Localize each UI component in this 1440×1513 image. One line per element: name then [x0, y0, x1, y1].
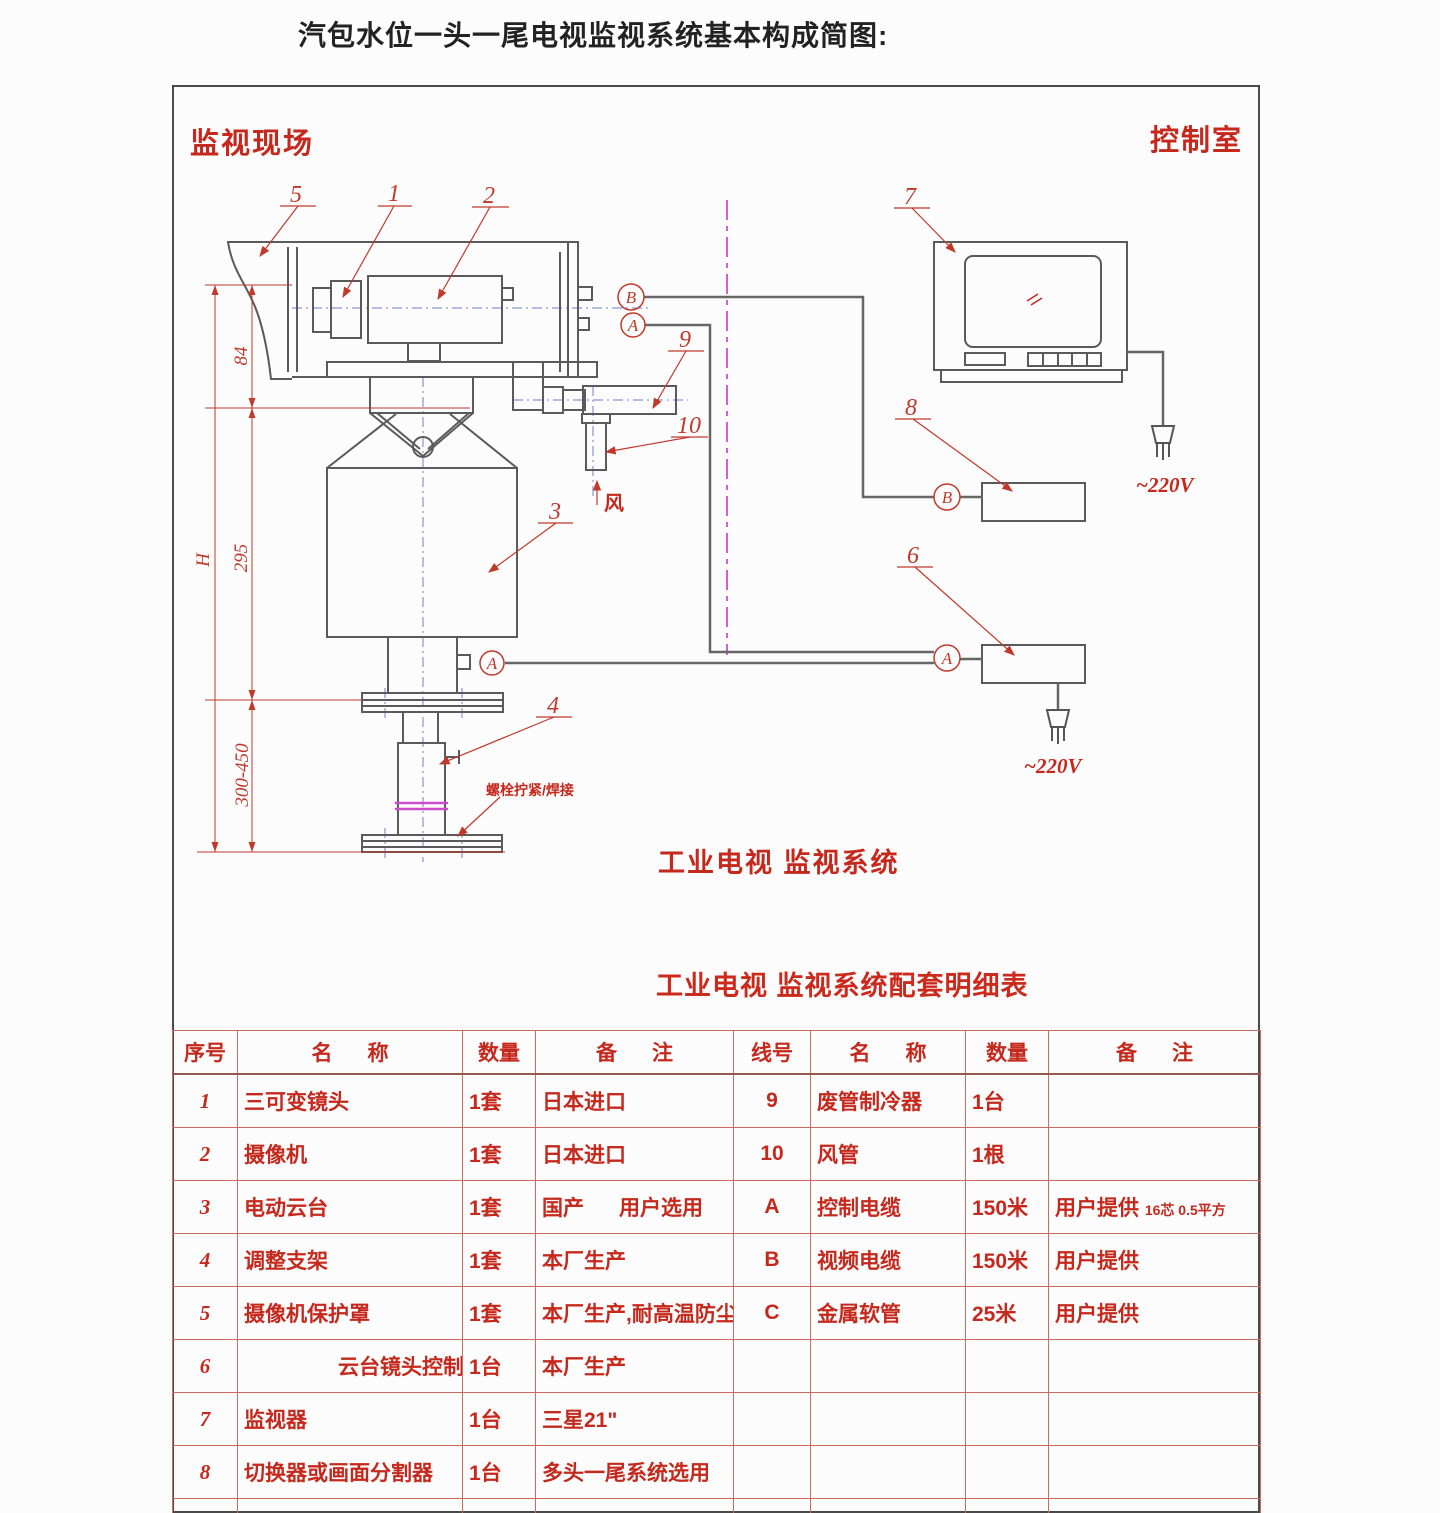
table-header-row: 序号 名 称 数量 备 注 线号 名 称 数量 备 注	[173, 1031, 1261, 1075]
controller-box	[982, 645, 1085, 683]
mounting-plate	[327, 362, 597, 377]
cell-remark2: 用户提供	[1049, 1234, 1261, 1287]
cell-no: 5	[173, 1287, 238, 1340]
control-cable-a-camera	[645, 325, 934, 652]
monitor-base	[941, 370, 1122, 382]
cell-qty: 1套	[463, 1234, 536, 1287]
header-remark2: 备 注	[1049, 1031, 1261, 1075]
callout-9: 9	[679, 327, 691, 353]
cell-name2: 视频电缆	[811, 1234, 966, 1287]
cell-remark2	[1049, 1393, 1261, 1446]
cell-no: 2	[173, 1128, 238, 1181]
table-row-partial	[173, 1499, 1261, 1513]
cell-remark: 本厂生产,耐高温防尘	[536, 1287, 734, 1340]
cell-qty2: 1根	[966, 1128, 1049, 1181]
cell-no: 1	[173, 1074, 238, 1128]
table-row: 7 监视器 1台 三星21"	[173, 1393, 1261, 1446]
callout-1: 1	[388, 181, 400, 207]
cooler-assembly	[513, 362, 676, 470]
table-row: 2 摄像机 1套 日本进口 10 风管 1根	[173, 1128, 1261, 1181]
cell-qty: 1台	[463, 1340, 536, 1393]
switcher-box	[982, 483, 1085, 521]
upper-flange	[362, 693, 503, 712]
cell-line-no	[734, 1393, 811, 1446]
cell-name: 电动云台	[238, 1181, 463, 1234]
header-qty: 数量	[463, 1031, 536, 1075]
cell-remark: 本厂生产	[536, 1340, 734, 1393]
cell-qty: 1台	[463, 1446, 536, 1499]
cell-remark: 日本进口	[536, 1128, 734, 1181]
callout-2: 2	[483, 183, 495, 209]
cell-remark: 三星21"	[536, 1393, 734, 1446]
cell-remark: 国产 用户选用	[536, 1181, 734, 1234]
cell-qty: 1套	[463, 1181, 536, 1234]
callout-6: 6	[907, 543, 919, 569]
cell-name2	[811, 1446, 966, 1499]
cell-name: 切换器或画面分割器	[238, 1446, 463, 1499]
cell-qty: 1套	[463, 1287, 536, 1340]
dim-295: 295	[231, 544, 252, 573]
cell-line-no	[734, 1340, 811, 1393]
cell-qty: 1台	[463, 1393, 536, 1446]
callout-3: 3	[548, 499, 561, 525]
header-name2: 名 称	[811, 1031, 966, 1075]
schematic-svg: B A B A A 84 295 300-450	[0, 0, 1440, 1030]
dim-300-450: 300-450	[232, 743, 253, 808]
cell-remark2	[1049, 1446, 1261, 1499]
cell-name2: 风管	[811, 1128, 966, 1181]
table-row: 6 云台镜头控制器 1台 本厂生产	[173, 1340, 1261, 1393]
callout-7: 7	[904, 184, 917, 210]
dim-h: H	[193, 552, 214, 568]
lens-barrel	[313, 288, 331, 332]
cell-line-no: A	[734, 1181, 811, 1234]
cell-name2	[811, 1393, 966, 1446]
bottom-flange	[362, 835, 502, 852]
plug-icon	[1047, 710, 1069, 744]
cell-name2: 金属软管	[811, 1287, 966, 1340]
table-row: 5 摄像机保护罩 1套 本厂生产,耐高温防尘 C 金属软管 25米 用户提供	[173, 1287, 1261, 1340]
cell-line-no: 10	[734, 1128, 811, 1181]
cell-no: 6	[173, 1340, 238, 1393]
callout-10: 10	[677, 413, 701, 439]
cell-qty2	[966, 1446, 1049, 1499]
adjust-bracket	[398, 743, 445, 835]
header-name: 名 称	[238, 1031, 463, 1075]
weld-note: 螺栓拧紧/焊接	[486, 782, 574, 798]
plug-icon	[1152, 426, 1174, 460]
cell-qty2	[966, 1393, 1049, 1446]
header-remark: 备 注	[536, 1031, 734, 1075]
cell-name2: 废管制冷器	[811, 1074, 966, 1128]
cell-name: 三可变镜头	[238, 1074, 463, 1128]
cell-no: 3	[173, 1181, 238, 1234]
screen-reflection-mark	[1027, 294, 1042, 305]
callout-4: 4	[547, 693, 559, 719]
cell-qty2: 1台	[966, 1074, 1049, 1128]
cell-qty2: 150米	[966, 1234, 1049, 1287]
header-line-no: 线号	[734, 1031, 811, 1075]
parts-table: 序号 名 称 数量 备 注 线号 名 称 数量 备 注 1 三可变镜头 1套 日…	[172, 1030, 1261, 1513]
table-title: 工业电视 监视系统配套明细表	[656, 964, 1029, 1003]
connector-b: B	[626, 288, 637, 307]
cell-remark: 日本进口	[536, 1074, 734, 1128]
cell-line-no: 9	[734, 1074, 811, 1128]
cell-remark: 本厂生产	[536, 1234, 734, 1287]
table-row: 1 三可变镜头 1套 日本进口 9 废管制冷器 1台	[173, 1074, 1261, 1128]
table-row: 3 电动云台 1套 国产 用户选用 A 控制电缆 150米 用户提供 16芯 0…	[173, 1181, 1261, 1234]
cell-line-no: B	[734, 1234, 811, 1287]
wind-label: 风	[604, 493, 624, 515]
callout-numbers: 5 1 2 9 10 3 4 7 8 6	[290, 181, 919, 719]
connector-b: B	[942, 488, 953, 507]
cell-name: 云台镜头控制器	[238, 1340, 463, 1393]
camera-assembly	[228, 242, 676, 852]
system-label: 工业电视 监视系统	[658, 847, 900, 878]
control-room-equipment	[934, 242, 1127, 683]
voltage-label-monitor: ~220V	[1136, 473, 1195, 497]
cell-remark: 多头一尾系统选用	[536, 1446, 734, 1499]
centerlines	[292, 308, 688, 862]
pan-tilt-body	[327, 468, 517, 637]
cell-name2: 控制电缆	[811, 1181, 966, 1234]
header-no: 序号	[173, 1031, 238, 1075]
cell-remark2: 用户提供 16芯 0.5平方	[1049, 1181, 1261, 1234]
callout-8: 8	[905, 395, 917, 421]
voltage-label-controller: ~220V	[1024, 754, 1083, 778]
cell-remark2	[1049, 1128, 1261, 1181]
housing-body	[290, 242, 578, 377]
cell-remark2	[1049, 1074, 1261, 1128]
header-qty2: 数量	[966, 1031, 1049, 1075]
cell-no: 8	[173, 1446, 238, 1499]
cell-name: 调整支架	[238, 1234, 463, 1287]
cell-name: 摄像机保护罩	[238, 1287, 463, 1340]
connector-a: A	[627, 316, 639, 335]
cell-no: 4	[173, 1234, 238, 1287]
air-outlet-tube	[586, 423, 606, 470]
camera-body	[368, 276, 502, 343]
cell-remark2: 用户提供	[1049, 1287, 1261, 1340]
table-row: 4 调整支架 1套 本厂生产 B 视频电缆 150米 用户提供	[173, 1234, 1261, 1287]
table-row: 8 切换器或画面分割器 1台 多头一尾系统选用	[173, 1446, 1261, 1499]
monitor-power-cord	[1127, 352, 1163, 426]
cell-name2	[811, 1340, 966, 1393]
cell-remark2	[1049, 1340, 1261, 1393]
cell-qty: 1套	[463, 1074, 536, 1128]
cell-name: 摄像机	[238, 1128, 463, 1181]
cell-line-no: C	[734, 1287, 811, 1340]
cell-line-no	[734, 1446, 811, 1499]
dim-84: 84	[231, 346, 252, 366]
monitor-case	[934, 242, 1127, 370]
connector-a: A	[486, 654, 498, 673]
monitor-screen	[965, 256, 1101, 347]
bracket-band	[395, 803, 448, 809]
cell-no: 7	[173, 1393, 238, 1446]
cell-qty2	[966, 1340, 1049, 1393]
connector-labels: B A B A A	[480, 284, 960, 675]
cell-qty2: 25米	[966, 1287, 1049, 1340]
callout-5: 5	[290, 182, 302, 208]
cell-name: 监视器	[238, 1393, 463, 1446]
document-page: 汽包水位一头一尾电视监视系统基本构成简图: 监视现场 控制室	[0, 0, 1440, 1513]
connector-a: A	[941, 649, 953, 668]
cell-qty2: 150米	[966, 1181, 1049, 1234]
leader-lines	[260, 206, 1014, 836]
cell-qty: 1套	[463, 1128, 536, 1181]
